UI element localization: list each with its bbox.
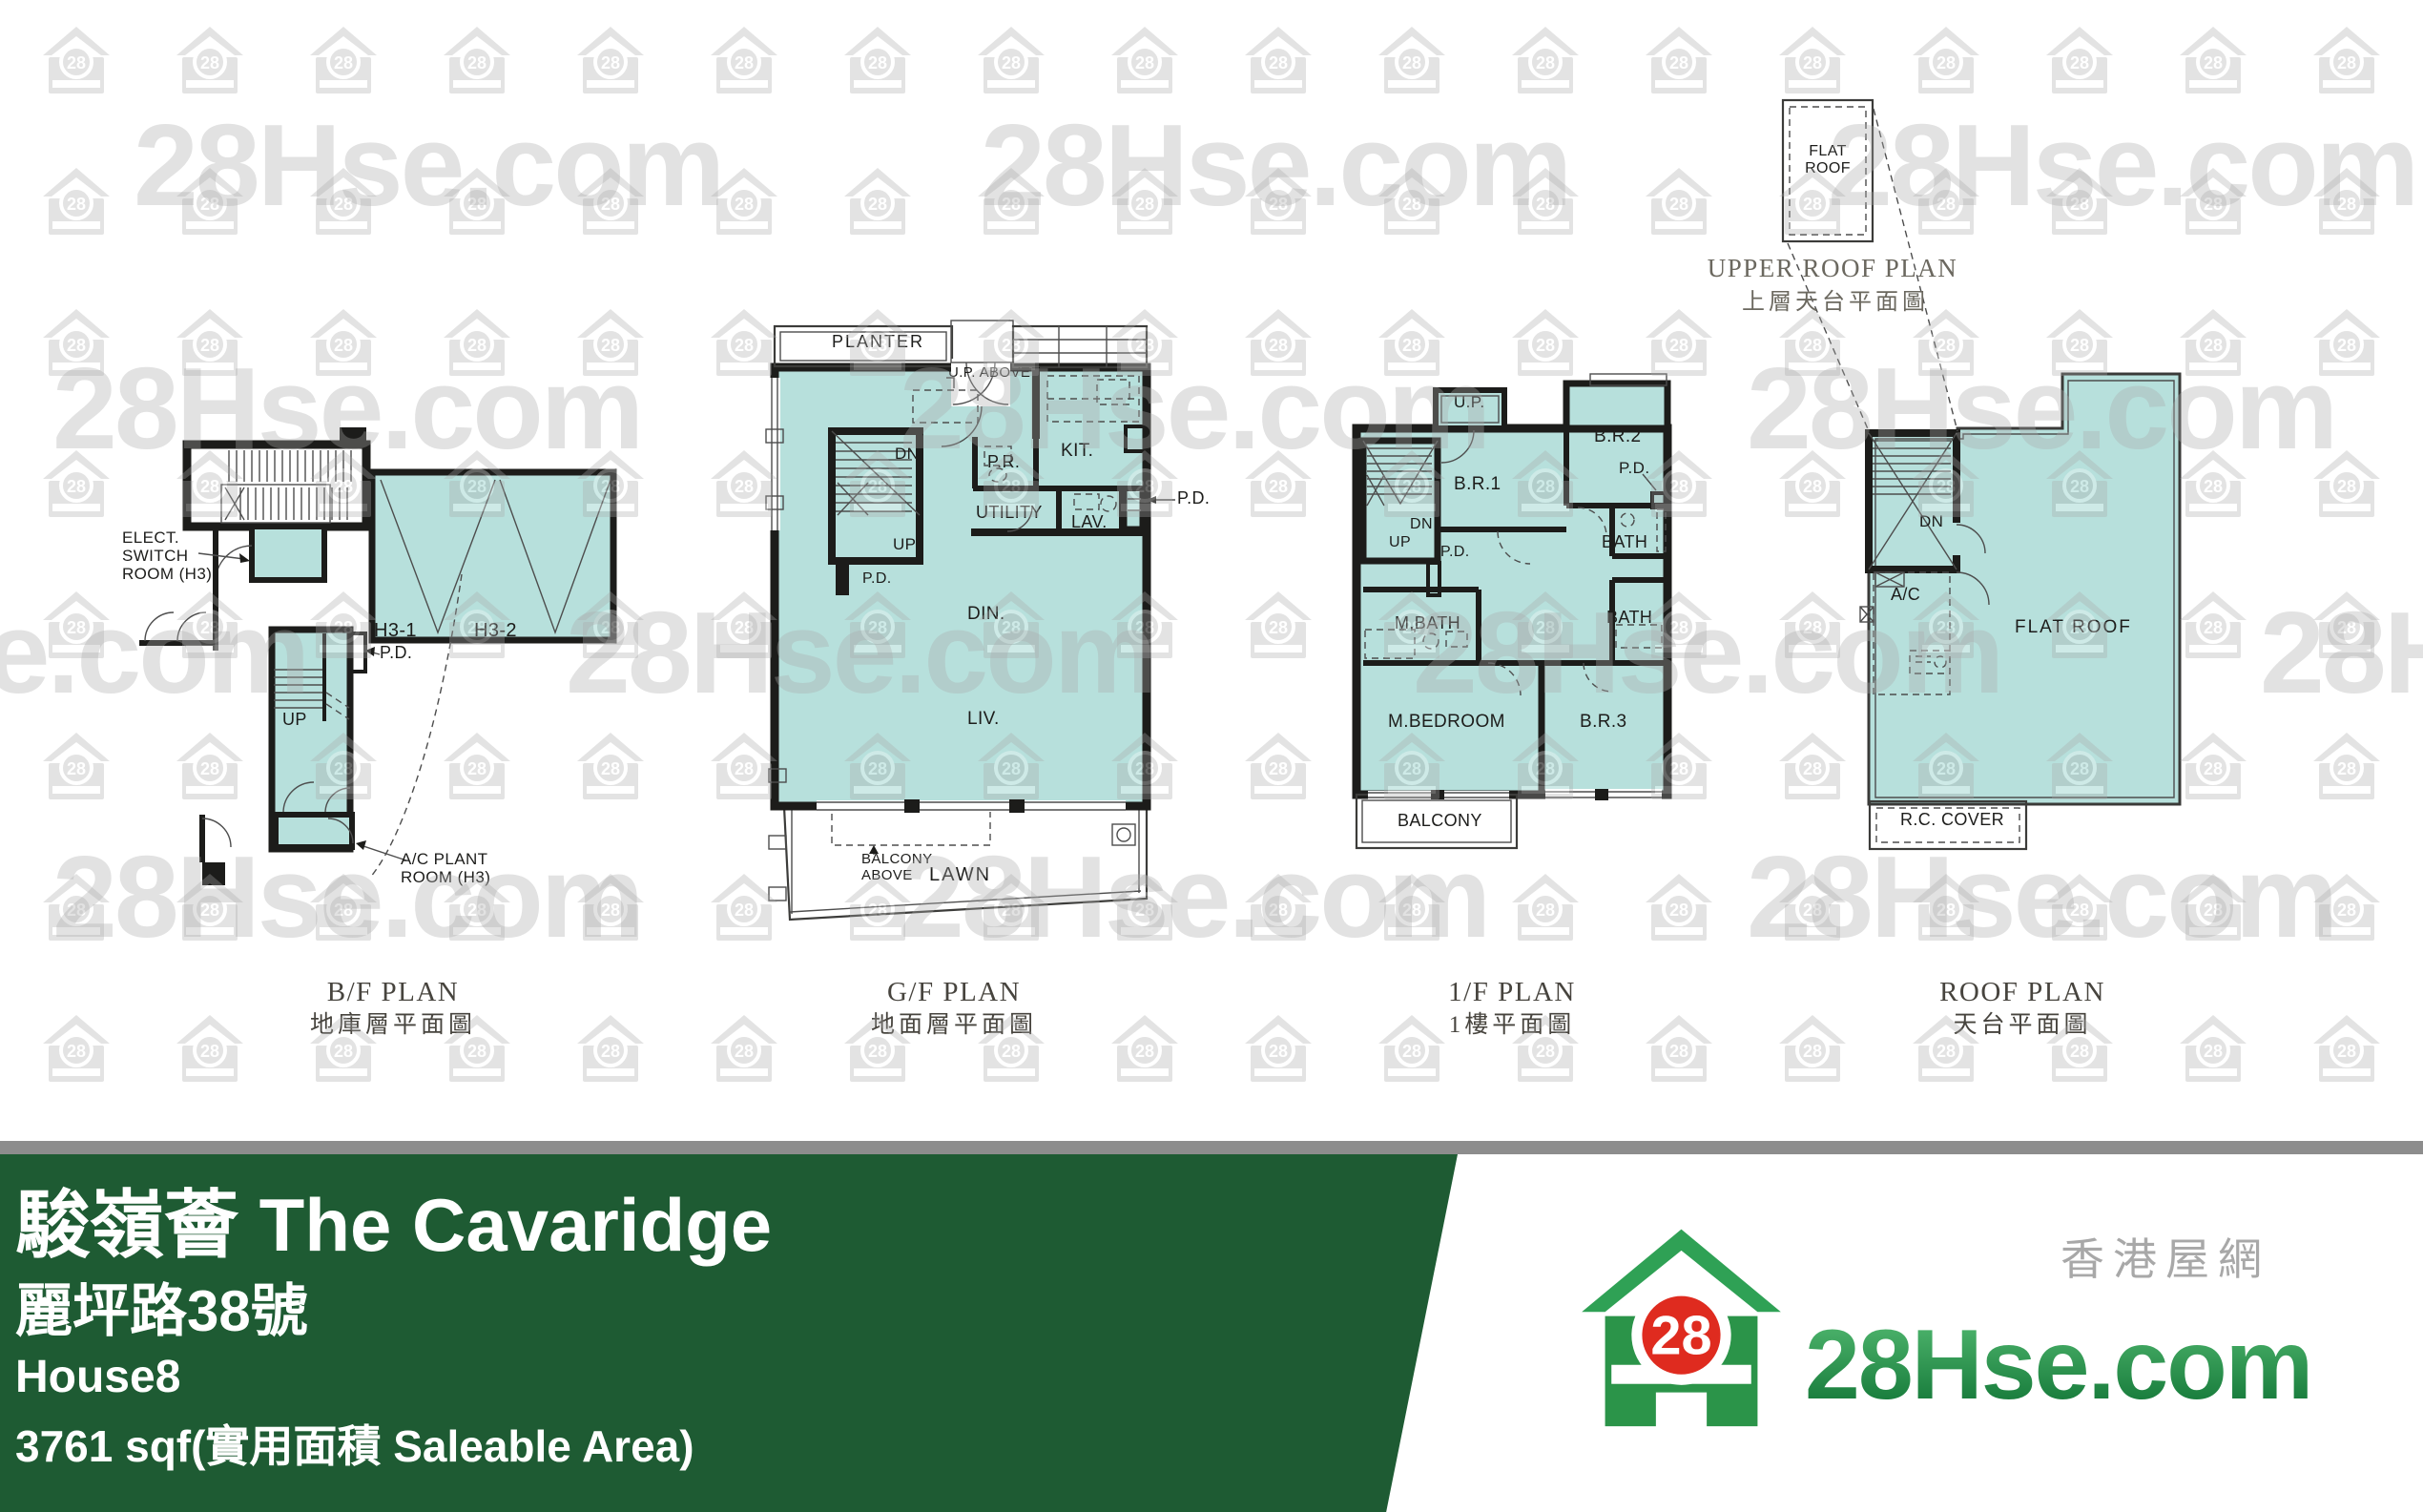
label-bf-elect-switch-room: ELECT. SWITCH ROOM (H3) xyxy=(122,528,212,583)
title-bf-plan-zh: 地庫層平面圖 xyxy=(310,1005,476,1040)
label-gf-pr: P.R. xyxy=(987,452,1020,471)
label-gf-kitchen: KIT. xyxy=(1061,441,1093,461)
floorplan-sheet: ELECT. SWITCH ROOM (H3) H3-1 H3-2 P.D. U… xyxy=(0,0,2423,1512)
label-ff-br1: B.R.1 xyxy=(1454,474,1501,494)
title-upper-roof-plan-en: UPPER ROOF PLAN xyxy=(1708,254,1958,283)
label-gf-planter: PLANTER xyxy=(832,332,924,351)
label-upper-flat-roof: FLAT ROOF xyxy=(1805,143,1851,177)
label-ff-bath-lower: BATH xyxy=(1606,608,1652,627)
title-upper-roof-plan-zh: 上層天台平面圖 xyxy=(1742,282,1929,316)
28hse-brand-wordmark: 28Hse.com xyxy=(1805,1309,2311,1422)
label-gf-utility: UTILITY xyxy=(976,503,1043,522)
plan-bf xyxy=(139,427,613,885)
label-ff-mbedroom: M.BEDROOM xyxy=(1388,712,1505,732)
label-gf-up: UP xyxy=(893,535,916,553)
label-ff-br3: B.R.3 xyxy=(1580,712,1627,732)
label-ff-up-porch: U.P. xyxy=(1454,393,1484,411)
label-roof-rc-cover: R.C. COVER xyxy=(1900,810,2004,829)
label-gf-lawn: LAWN xyxy=(929,864,991,885)
title-bf-plan-en: B/F PLAN xyxy=(327,977,460,1008)
title-gf-plan-zh: 地面層平面圖 xyxy=(871,1005,1037,1040)
title-roof-plan-en: ROOF PLAN xyxy=(1939,977,2105,1008)
label-ff-br2: B.R.2 xyxy=(1594,426,1642,446)
label-ff-pd2: P.D. xyxy=(1440,544,1470,561)
property-name: 駿嶺薈 The Cavaridge xyxy=(15,1166,772,1273)
label-gf-pd-right: P.D. xyxy=(1177,488,1210,507)
label-gf-pd-stair: P.D. xyxy=(862,570,892,588)
label-ff-mbath: M.BATH xyxy=(1395,613,1460,632)
label-ff-dn: DN xyxy=(1410,516,1433,533)
label-ff-up: UP xyxy=(1389,534,1411,551)
label-bf-h3-1: H3-1 xyxy=(374,620,417,641)
title-gf-plan-en: G/F PLAN xyxy=(887,977,1021,1008)
property-saleable-area: 3761 sqf(實用面積 Saleable Area) xyxy=(15,1412,694,1475)
plan-roof xyxy=(1860,374,2180,849)
label-bf-ac-plant-room: A/C PLANT ROOM (H3) xyxy=(401,850,490,886)
28hse-chinese-name: 香港屋網 xyxy=(2061,1225,2270,1288)
label-ff-bath-upper: BATH xyxy=(1602,532,1647,551)
label-roof-ac: A/C xyxy=(1891,585,1920,604)
property-address: 麗坪路38號 xyxy=(15,1265,308,1348)
title-roof-plan-zh: 天台平面圖 xyxy=(1953,1005,2091,1040)
label-roof-flat-roof: FLAT ROOF xyxy=(2015,617,2132,637)
title-ff-plan-zh: 1樓平面圖 xyxy=(1449,1005,1576,1040)
label-ff-balcony: BALCONY xyxy=(1398,811,1482,830)
label-bf-h3-2: H3-2 xyxy=(474,620,517,641)
label-bf-pd: P.D. xyxy=(380,643,412,662)
28hse-house-logo-icon: 28 xyxy=(1574,1223,1789,1435)
property-house-number: House8 xyxy=(15,1351,180,1403)
label-gf-dn: DN xyxy=(895,445,919,463)
label-bf-up: UP xyxy=(282,710,307,729)
label-gf-balcony-above: BALCONY ABOVE xyxy=(861,852,933,884)
title-ff-plan-en: 1/F PLAN xyxy=(1448,977,1576,1008)
label-gf-living: LIV. xyxy=(967,709,1000,729)
divider-bar xyxy=(0,1141,2423,1154)
label-roof-dn: DN xyxy=(1919,512,1943,530)
label-ff-pd1: P.D. xyxy=(1619,459,1649,477)
label-gf-lav: LAV. xyxy=(1071,512,1108,531)
label-gf-up-above: U.P. ABOVE xyxy=(948,365,1030,382)
label-gf-dining: DIN. xyxy=(967,604,1005,624)
svg-text:28: 28 xyxy=(1650,1306,1711,1367)
